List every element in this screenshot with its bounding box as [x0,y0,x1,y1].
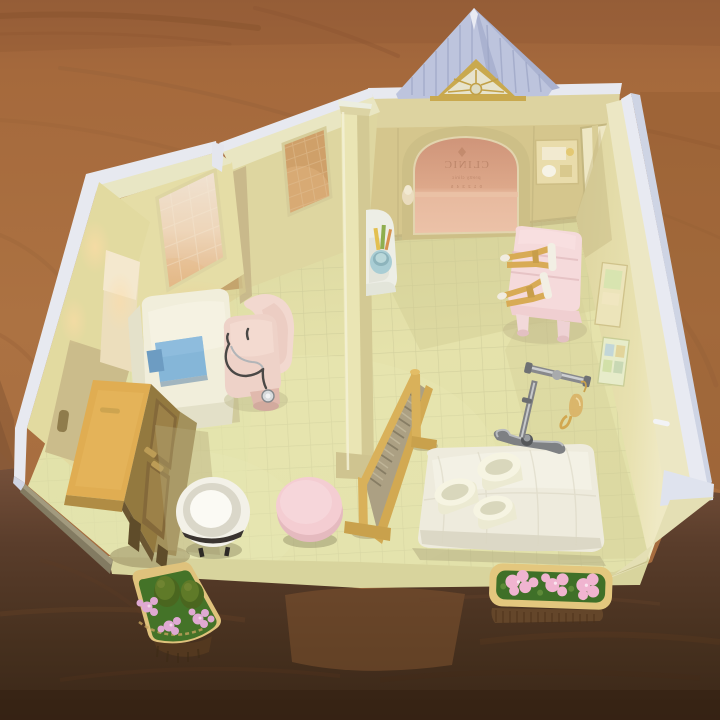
svg-text:0 1 2 3 4 5: 0 1 2 3 4 5 [450,184,482,189]
svg-text:pretty clinic: pretty clinic [451,175,480,180]
svg-text:CLINIC: CLINIC [443,159,489,171]
